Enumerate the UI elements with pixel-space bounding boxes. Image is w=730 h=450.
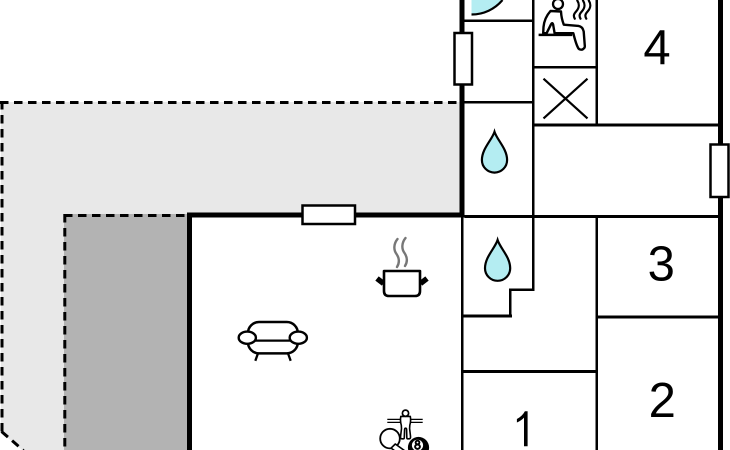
svg-text:2: 2: [649, 374, 676, 428]
svg-text:4: 4: [643, 21, 670, 75]
svg-text:3: 3: [648, 237, 675, 291]
